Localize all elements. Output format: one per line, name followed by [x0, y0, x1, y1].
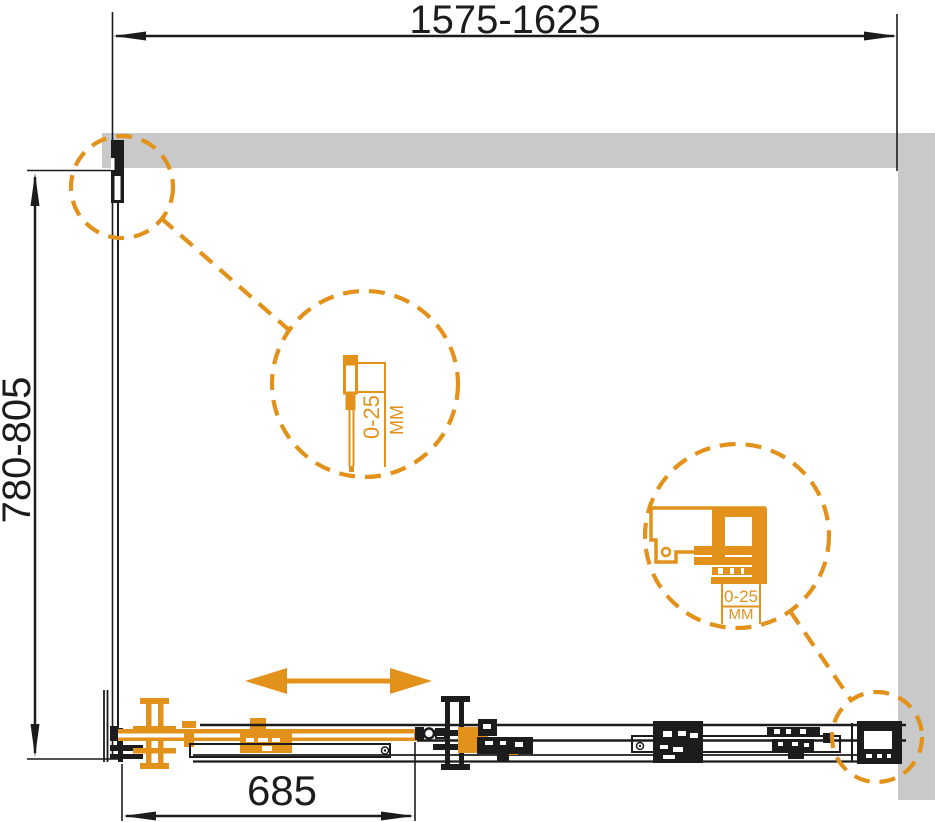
door-carriage-orange [240, 718, 292, 753]
technical-drawing-canvas: 1575-1625 780-805 685 0-25 MM 0-25 MM [0, 0, 935, 822]
wall-top [102, 133, 935, 168]
wall-profile-top-left [111, 140, 124, 203]
dim-door-label: 685 [182, 768, 382, 814]
side-glass-edge [113, 12, 119, 758]
slide-direction-arrow [245, 668, 432, 694]
wall-right [898, 168, 935, 800]
wall-profile-adjust-range-label: 0-25 [360, 357, 384, 477]
door-track-assembly [104, 690, 906, 770]
wall-profile-adjust-unit-label: MM [387, 380, 407, 460]
leader-line-2 [790, 611, 851, 700]
dim-depth-label: 780-805 [0, 340, 38, 560]
roller-carriage-2 [653, 721, 703, 763]
dim-width-label: 1575-1625 [355, 0, 655, 42]
door-end-profile [852, 721, 902, 764]
callout-circles [71, 136, 922, 782]
leader-line-1 [161, 218, 289, 330]
dim-depth-left [27, 171, 121, 760]
roller-adjust-range-label: 0-25 [701, 587, 781, 606]
drawing-linework [0, 0, 935, 822]
roller-adjust-unit-label: MM [701, 606, 781, 623]
